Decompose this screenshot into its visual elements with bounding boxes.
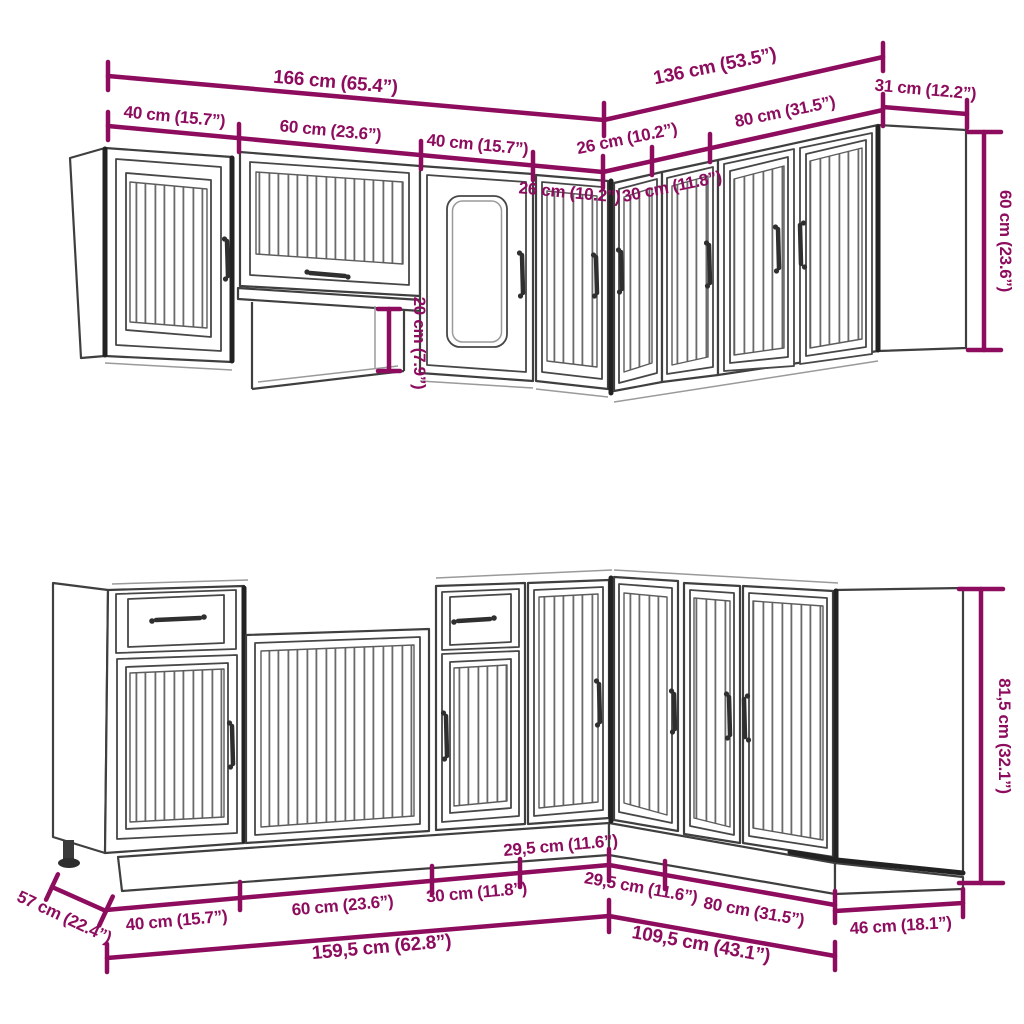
wall-cabinet-26-right-wall bbox=[614, 172, 662, 391]
base-cabinet-40-drawer bbox=[53, 580, 248, 868]
dim-base-depth-left: 57 cm (22.4”) bbox=[14, 887, 114, 947]
dim-line-top-depth bbox=[883, 107, 967, 114]
dim-base-40: 40 cm (15.7”) bbox=[125, 907, 228, 935]
wall-cabinet-40-glass bbox=[420, 166, 533, 388]
microwave-niche bbox=[252, 302, 404, 389]
dim-base-height: 81,5 cm (32.1”) bbox=[995, 678, 1014, 794]
dim-top-total-right: 136 cm (53.5”) bbox=[652, 44, 778, 89]
wall-cabinet-40-left bbox=[70, 148, 232, 370]
cabinet-dimension-diagram: 166 cm (65.4”) 136 cm (53.5”) 40 cm (15.… bbox=[0, 0, 1024, 1024]
base-cabinet-60 bbox=[246, 629, 429, 843]
base-cabinet-assembly: 57 cm (22.4”) 40 cm (15.7”) 60 cm (23.6”… bbox=[14, 570, 1014, 972]
dim-top-26-right: 26 cm (10.2”) bbox=[575, 119, 679, 158]
wall-cabinet-assembly: 166 cm (65.4”) 136 cm (53.5”) 40 cm (15.… bbox=[70, 43, 1015, 402]
dim-top-height: 60 cm (23.6”) bbox=[996, 190, 1015, 292]
dim-top-niche: 20 cm (7.9”) bbox=[410, 297, 429, 390]
wall-cabinet-side-panel bbox=[878, 125, 966, 351]
dim-base-295-right: 29,5 cm (11.6”) bbox=[583, 868, 699, 907]
wall-cabinet-26-left-wall bbox=[536, 175, 608, 397]
base-cabinet-30-drawer bbox=[436, 583, 525, 830]
dim-top-40b: 40 cm (15.7”) bbox=[426, 130, 529, 158]
base-cabinet-side-panel bbox=[835, 588, 963, 874]
dim-base-total-right: 109,5 cm (43.1”) bbox=[630, 922, 771, 967]
dim-base-30: 30 cm (11.8”) bbox=[425, 879, 527, 907]
dim-top-depth: 31 cm (12.2”) bbox=[874, 76, 977, 104]
dim-base-60: 60 cm (23.6”) bbox=[291, 892, 394, 920]
dim-base-depth-right: 46 cm (18.1”) bbox=[849, 913, 952, 938]
base-cabinet-80-double bbox=[684, 583, 963, 874]
wall-cabinet-60-microwave bbox=[238, 152, 421, 389]
dim-line-base-depth-right bbox=[835, 903, 963, 911]
dim-top-60: 60 cm (23.6”) bbox=[279, 116, 382, 144]
dim-top-40a: 40 cm (15.7”) bbox=[123, 102, 226, 130]
diagram-canvas: 166 cm (65.4”) 136 cm (53.5”) 40 cm (15.… bbox=[0, 0, 1024, 1024]
